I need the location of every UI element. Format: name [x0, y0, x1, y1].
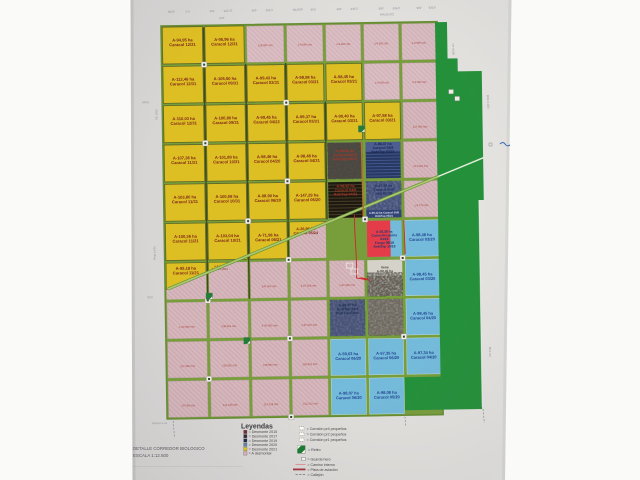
svg-text:= Camino interno: = Camino interno: [307, 463, 334, 467]
svg-text:= Retiro: = Retiro: [308, 448, 321, 452]
svg-text:ESCALA 1:12.500: ESCALA 1:12.500: [133, 453, 169, 458]
svg-text:= A desmontar: = A desmontar: [249, 452, 273, 456]
svg-text:= Callejón: = Callejón: [307, 473, 323, 477]
svg-text:= Corralón pr1 pequeños: = Corralón pr1 pequeños: [307, 438, 347, 442]
svg-text:= Corralón pr4 pequeños: = Corralón pr4 pequeños: [307, 427, 347, 431]
svg-text:= Guarda hero: = Guarda hero: [307, 457, 330, 461]
svg-text:= Pista de aviación: = Pista de aviación: [307, 468, 337, 472]
svg-text:DETALLE CORREDOR BIOLOGICO: DETALLE CORREDOR BIOLOGICO: [133, 446, 205, 451]
svg-text:= Corralón pr2 pequeños: = Corralón pr2 pequeños: [307, 433, 347, 437]
